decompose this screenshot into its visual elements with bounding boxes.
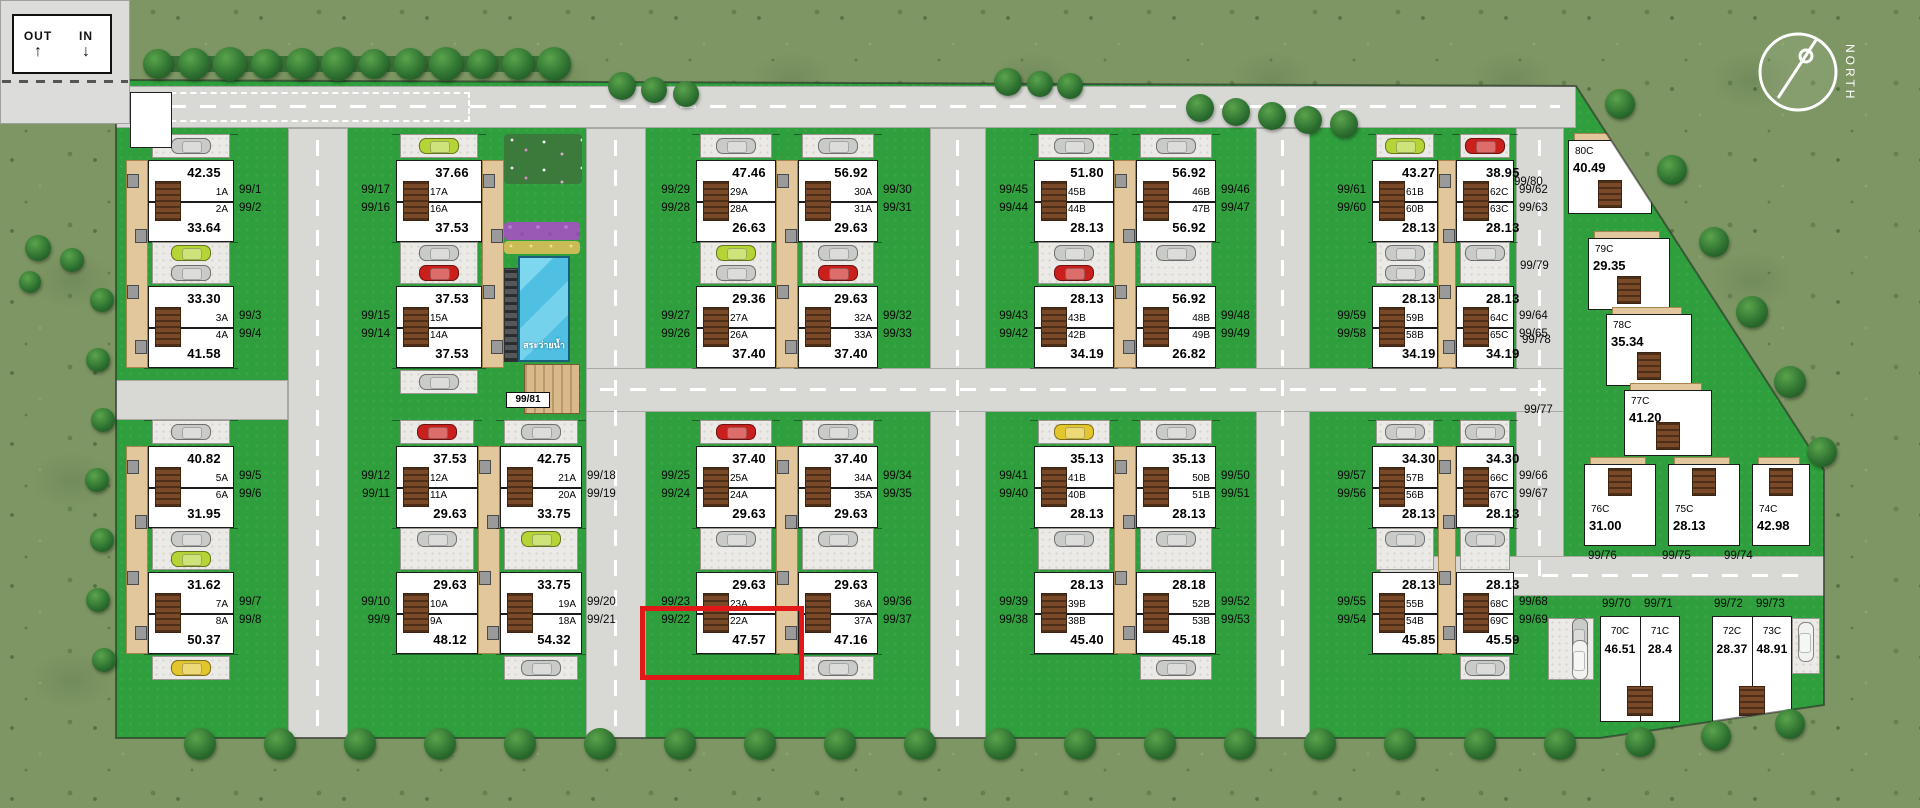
staircase-icon (1692, 468, 1716, 496)
car-roof (182, 534, 202, 546)
plot-boundary-line (392, 368, 486, 369)
lot-label-99-29: 99/29 (646, 184, 690, 196)
unit-area-label: 40.49 (1573, 160, 1606, 175)
unit-99-7[interactable] (148, 572, 234, 613)
plot-boundary-line (1030, 368, 1118, 369)
service-walkway (126, 160, 148, 368)
lot-label-99-36: 99/36 (883, 596, 929, 608)
swimming-pool: สระว่ายน้ำ (518, 256, 570, 362)
car-roof (1396, 534, 1416, 546)
unit-code-label: 80C (1575, 146, 1593, 157)
lot-label-99-49: 99/49 (1221, 328, 1267, 340)
car-roof (727, 534, 747, 546)
north-label: NORTH (1843, 44, 1857, 101)
utility-box-icon (135, 340, 147, 354)
unit-99-26[interactable] (696, 327, 776, 368)
car-roof (532, 427, 552, 439)
car-icon (521, 660, 561, 676)
unit-99-44[interactable] (1034, 201, 1114, 242)
unit-99-24[interactable] (696, 487, 776, 528)
lot-label-99-53: 99/53 (1221, 614, 1267, 626)
unit-99-63[interactable] (1456, 201, 1514, 242)
tree-icon (1330, 110, 1358, 138)
lot-label-99-78: 99/78 (1522, 334, 1551, 346)
tree-icon (178, 48, 210, 80)
unit-99-56[interactable] (1372, 487, 1438, 528)
car-roof (1396, 141, 1416, 153)
unit-99-57[interactable] (1372, 446, 1438, 487)
car-icon (1465, 138, 1505, 154)
tree-icon (90, 288, 114, 312)
car-roof (1167, 141, 1187, 153)
unit-99-67[interactable] (1456, 487, 1514, 528)
car-icon (1156, 424, 1196, 440)
tree-icon (429, 47, 463, 81)
car-icon (419, 138, 459, 154)
unit-99-55[interactable] (1372, 572, 1438, 613)
unit-99-20[interactable] (500, 572, 582, 613)
unit-99-54[interactable] (1372, 613, 1438, 654)
car-icon (1054, 424, 1094, 440)
unit-99-35[interactable] (798, 487, 878, 528)
unit-99-19[interactable] (500, 487, 582, 528)
tree-icon (1544, 728, 1576, 760)
unit-99-25[interactable] (696, 446, 776, 487)
car-roof (1396, 268, 1416, 280)
lot-label-99-14: 99/14 (346, 328, 390, 340)
car-roof (1167, 427, 1187, 439)
car-icon (1156, 138, 1196, 154)
lot-label-99-79: 99/79 (1520, 260, 1549, 272)
service-walkway (1114, 446, 1136, 654)
lot-label-99-52: 99/52 (1221, 596, 1267, 608)
tree-icon (19, 271, 41, 293)
car-icon (818, 138, 858, 154)
car-icon (417, 531, 457, 547)
tree-icon (1294, 106, 1322, 134)
lot-label-99-54: 99/54 (1322, 614, 1366, 626)
car-roof (727, 248, 747, 260)
unit-99-36[interactable] (798, 572, 878, 613)
unit-99-71[interactable] (1640, 616, 1680, 722)
car-roof (182, 663, 202, 675)
utility-box-icon (483, 174, 495, 188)
lot-label-99-55: 99/55 (1322, 596, 1366, 608)
car-icon (1385, 424, 1425, 440)
lot-label-99-37: 99/37 (883, 614, 929, 626)
tree-icon (1144, 728, 1176, 760)
tree-icon (502, 48, 534, 80)
car-icon (419, 374, 459, 390)
utility-box-icon (135, 626, 147, 640)
tree-icon (904, 728, 936, 760)
unit-99-58[interactable] (1372, 327, 1438, 368)
tree-icon (1186, 94, 1214, 122)
unit-99-17[interactable] (396, 160, 482, 201)
unit-99-59[interactable] (1372, 286, 1438, 327)
unit-99-34[interactable] (798, 446, 878, 487)
unit-99-31[interactable] (798, 201, 878, 242)
tree-icon (25, 235, 51, 261)
car-roof (182, 427, 202, 439)
lot-label-99-10: 99/10 (346, 596, 390, 608)
utility-box-icon (1115, 285, 1127, 299)
road-center-dashes (614, 140, 617, 726)
tree-icon (143, 49, 173, 79)
unit-99-62[interactable] (1456, 160, 1514, 201)
lot-label-99-8: 99/8 (239, 614, 285, 626)
car-roof (430, 377, 450, 389)
unit-99-11[interactable] (396, 487, 478, 528)
utility-box-icon (777, 460, 789, 474)
car-roof (829, 141, 849, 153)
unit-area-label: 29.35 (1593, 258, 1626, 273)
lot-label-99-30: 99/30 (883, 184, 929, 196)
lot-label-99-51: 99/51 (1221, 488, 1267, 500)
car-roof (182, 141, 202, 153)
clubhouse-lot-label: 99/81 (506, 392, 550, 408)
lot-label-99-35: 99/35 (883, 488, 929, 500)
car-icon (171, 551, 211, 567)
utility-box-icon (483, 285, 495, 299)
plot-boundary-line (1452, 654, 1518, 655)
car-icon (1798, 622, 1814, 662)
unit-99-64[interactable] (1456, 286, 1514, 327)
car-roof (182, 554, 202, 566)
unit-code-label: 77C (1631, 396, 1649, 407)
utility-box-icon (777, 571, 789, 585)
unit-99-72[interactable] (1712, 616, 1752, 722)
lot-label-99-74: 99/74 (1724, 550, 1753, 562)
unit-99-29[interactable] (696, 160, 776, 201)
unit-99-65[interactable] (1456, 327, 1514, 368)
unit-code-label: 78C (1613, 320, 1631, 331)
lot-label-99-17: 99/17 (346, 184, 390, 196)
car-icon (419, 245, 459, 261)
car-icon (171, 531, 211, 547)
utility-box-icon (491, 340, 503, 354)
tree-icon (1807, 437, 1837, 467)
unit-99-43[interactable] (1034, 286, 1114, 327)
car-icon (1054, 531, 1094, 547)
car-roof (1476, 427, 1496, 439)
tree-icon (984, 728, 1016, 760)
utility-box-icon (1123, 340, 1135, 354)
tree-icon (608, 72, 636, 100)
unit-99-5[interactable] (148, 446, 234, 487)
unit-99-61[interactable] (1372, 160, 1438, 201)
in-label: IN (79, 29, 93, 43)
plot-boundary-line (144, 368, 238, 369)
car-icon (1385, 531, 1425, 547)
lot-label-99-42: 99/42 (984, 328, 1028, 340)
tree-icon (1701, 721, 1731, 751)
lot-label-99-27: 99/27 (646, 310, 690, 322)
lot-label-99-28: 99/28 (646, 202, 690, 214)
car-icon (171, 265, 211, 281)
pool-label: สระว่ายน้ำ (523, 338, 565, 360)
unit-99-39[interactable] (1034, 572, 1114, 613)
unit-area-label: 28.13 (1673, 518, 1706, 533)
plot-boundary-line (1452, 368, 1518, 369)
car-icon (1385, 245, 1425, 261)
road-center-dashes (956, 140, 959, 726)
unit-99-50[interactable] (1136, 446, 1216, 487)
lot-label-99-24: 99/24 (646, 488, 690, 500)
lot-label-99-31: 99/31 (883, 202, 929, 214)
lot-label-99-80: 99/80 (1514, 176, 1543, 188)
tree-icon (1605, 89, 1635, 119)
unit-99-69[interactable] (1456, 613, 1514, 654)
unit-99-38[interactable] (1034, 613, 1114, 654)
unit-99-28[interactable] (696, 201, 776, 242)
utility-box-icon (777, 174, 789, 188)
tree-icon (824, 728, 856, 760)
utility-box-icon (1439, 174, 1451, 188)
utility-box-icon (127, 571, 139, 585)
car-roof (1476, 248, 1496, 260)
tree-icon (1774, 366, 1806, 398)
unit-99-66[interactable] (1456, 446, 1514, 487)
car-icon (1156, 245, 1196, 261)
parking-bay-dashes (160, 92, 470, 122)
entry-lane: IN ↓ (62, 16, 110, 72)
lot-label-99-1: 99/1 (239, 184, 285, 196)
unit-99-47[interactable] (1136, 201, 1216, 242)
car-roof (829, 427, 849, 439)
car-roof (430, 268, 450, 280)
lot-label-99-44: 99/44 (984, 202, 1028, 214)
exit-lane: OUT ↑ (14, 16, 62, 72)
tree-icon (424, 728, 456, 760)
car-roof (1476, 663, 1496, 675)
unit-99-32[interactable] (798, 286, 878, 327)
unit-99-42[interactable] (1034, 327, 1114, 368)
lot-label-99-46: 99/46 (1221, 184, 1267, 196)
car-roof (1476, 141, 1496, 153)
unit-99-10[interactable] (396, 572, 478, 613)
service-walkway (126, 446, 148, 654)
tree-icon (1064, 728, 1096, 760)
car-roof (182, 268, 202, 280)
car-roof (1167, 534, 1187, 546)
lot-label-99-16: 99/16 (346, 202, 390, 214)
lot-label-99-60: 99/60 (1322, 202, 1366, 214)
tree-icon (1699, 227, 1729, 257)
unit-99-21[interactable] (500, 613, 582, 654)
car-icon (716, 245, 756, 261)
tree-icon (537, 47, 571, 81)
unit-area-label: 35.34 (1611, 334, 1644, 349)
tree-icon (1057, 73, 1083, 99)
unit-99-37[interactable] (798, 613, 878, 654)
lot-label-99-34: 99/34 (883, 470, 929, 482)
unit-99-49[interactable] (1136, 327, 1216, 368)
lot-label-99-67: 99/67 (1519, 488, 1565, 500)
car-icon (1465, 531, 1505, 547)
unit-99-40[interactable] (1034, 487, 1114, 528)
lot-label-99-2: 99/2 (239, 202, 285, 214)
car-roof (829, 268, 849, 280)
plot-boundary-line (1368, 368, 1442, 369)
unit-99-27[interactable] (696, 286, 776, 327)
unit-99-48[interactable] (1136, 286, 1216, 327)
utility-box-icon (479, 460, 491, 474)
unit-99-60[interactable] (1372, 201, 1438, 242)
tree-icon (467, 49, 497, 79)
unit-99-2[interactable] (148, 201, 234, 242)
tree-icon (1384, 728, 1416, 760)
car-roof (1396, 427, 1416, 439)
car-roof (829, 663, 849, 675)
tree-icon (1625, 727, 1655, 757)
unit-99-15[interactable] (396, 286, 482, 327)
car-roof (1799, 633, 1811, 653)
unit-99-16[interactable] (396, 201, 482, 242)
car-roof (430, 141, 450, 153)
unit-99-6[interactable] (148, 487, 234, 528)
lot-label-99-71: 99/71 (1644, 598, 1673, 610)
lot-label-99-5: 99/5 (239, 470, 285, 482)
unit-99-18[interactable] (500, 446, 582, 487)
unit-99-53[interactable] (1136, 613, 1216, 654)
unit-code-label: 75C (1675, 504, 1693, 515)
tree-icon (91, 408, 115, 432)
car-icon (818, 531, 858, 547)
site-plan-canvas: สระว่ายน้ำ99/8142.351A2A33.6433.303A4A41… (0, 0, 1920, 808)
unit-99-9[interactable] (396, 613, 478, 654)
car-icon (1156, 660, 1196, 676)
flower-bed (504, 134, 582, 184)
utility-box-icon (1115, 460, 1127, 474)
service-walkway (1114, 160, 1136, 368)
lot-label-99-20: 99/20 (587, 596, 633, 608)
car-icon (417, 424, 457, 440)
car-roof (428, 534, 448, 546)
staircase-icon (1608, 468, 1632, 496)
utility-box-icon (785, 340, 797, 354)
tree-icon (86, 588, 110, 612)
unit-99-68[interactable] (1456, 572, 1514, 613)
entrance-dashed-line (2, 80, 128, 83)
service-walkway (776, 160, 798, 368)
car-roof (182, 248, 202, 260)
unit-99-8[interactable] (148, 613, 234, 654)
entrance-sign: OUT ↑ IN ↓ (12, 14, 112, 74)
lot-label-99-6: 99/6 (239, 488, 285, 500)
unit-99-52[interactable] (1136, 572, 1216, 613)
unit-99-3[interactable] (148, 286, 234, 327)
car-icon (1465, 660, 1505, 676)
tree-icon (504, 728, 536, 760)
unit-99-14[interactable] (396, 327, 482, 368)
lot-label-99-21: 99/21 (587, 614, 633, 626)
in-arrow-icon: ↓ (82, 45, 90, 59)
lot-label-99-43: 99/43 (984, 310, 1028, 322)
tree-icon (1657, 155, 1687, 185)
tree-icon (251, 49, 281, 79)
tree-icon (994, 68, 1022, 96)
unit-99-41[interactable] (1034, 446, 1114, 487)
car-icon (1385, 138, 1425, 154)
lot-label-99-11: 99/11 (346, 488, 390, 500)
plot-boundary-line (794, 654, 882, 655)
service-walkway (482, 160, 504, 368)
unit-99-73[interactable] (1752, 616, 1792, 722)
car-icon (171, 245, 211, 261)
car-icon (1054, 265, 1094, 281)
car-icon (1385, 265, 1425, 281)
highlighted-unit-box (640, 606, 804, 680)
utility-box-icon (1443, 340, 1455, 354)
tree-icon (1222, 98, 1250, 126)
car-icon (818, 265, 858, 281)
lot-label-99-58: 99/58 (1322, 328, 1366, 340)
lot-label-99-3: 99/3 (239, 310, 285, 322)
out-arrow-icon: ↑ (34, 45, 42, 59)
car-icon (171, 660, 211, 676)
staircase-icon (1598, 180, 1622, 208)
tree-icon (321, 47, 355, 81)
tree-icon (584, 728, 616, 760)
unit-99-30[interactable] (798, 160, 878, 201)
road (116, 380, 288, 420)
lot-label-99-56: 99/56 (1322, 488, 1366, 500)
car-icon (521, 424, 561, 440)
unit-99-1[interactable] (148, 160, 234, 201)
unit-99-33[interactable] (798, 327, 878, 368)
car-roof (829, 534, 849, 546)
car-roof (430, 248, 450, 260)
unit-code-label: 76C (1591, 504, 1609, 515)
utility-box-icon (1115, 174, 1127, 188)
car-roof (1396, 248, 1416, 260)
unit-code-label: 74C (1759, 504, 1777, 515)
lot-label-99-26: 99/26 (646, 328, 690, 340)
flower-bed-purple (504, 222, 580, 240)
unit-99-70[interactable] (1600, 616, 1640, 722)
guard-house (130, 92, 172, 148)
plot-boundary-line (392, 654, 482, 655)
unit-99-12[interactable] (396, 446, 478, 487)
car-icon (1465, 245, 1505, 261)
lot-label-99-38: 99/38 (984, 614, 1028, 626)
unit-99-51[interactable] (1136, 487, 1216, 528)
lot-label-99-7: 99/7 (239, 596, 285, 608)
lot-label-99-12: 99/12 (346, 470, 390, 482)
service-walkway (1438, 160, 1456, 368)
car-roof (829, 248, 849, 260)
staircase-icon (1769, 468, 1793, 496)
lot-label-99-32: 99/32 (883, 310, 929, 322)
plot-boundary-line (1132, 654, 1220, 655)
tree-icon (344, 728, 376, 760)
lot-label-99-48: 99/48 (1221, 310, 1267, 322)
car-icon (521, 531, 561, 547)
out-label: OUT (24, 29, 52, 43)
utility-box-icon (127, 174, 139, 188)
car-roof (1476, 534, 1496, 546)
tree-icon (85, 468, 109, 492)
unit-99-46[interactable] (1136, 160, 1216, 201)
car-icon (716, 531, 756, 547)
road-center-dashes (1281, 140, 1284, 726)
compass-north-icon: NORTH (1742, 18, 1862, 138)
car-icon (1156, 531, 1196, 547)
unit-99-4[interactable] (148, 327, 234, 368)
unit-99-45[interactable] (1034, 160, 1114, 201)
tree-icon (394, 48, 426, 80)
